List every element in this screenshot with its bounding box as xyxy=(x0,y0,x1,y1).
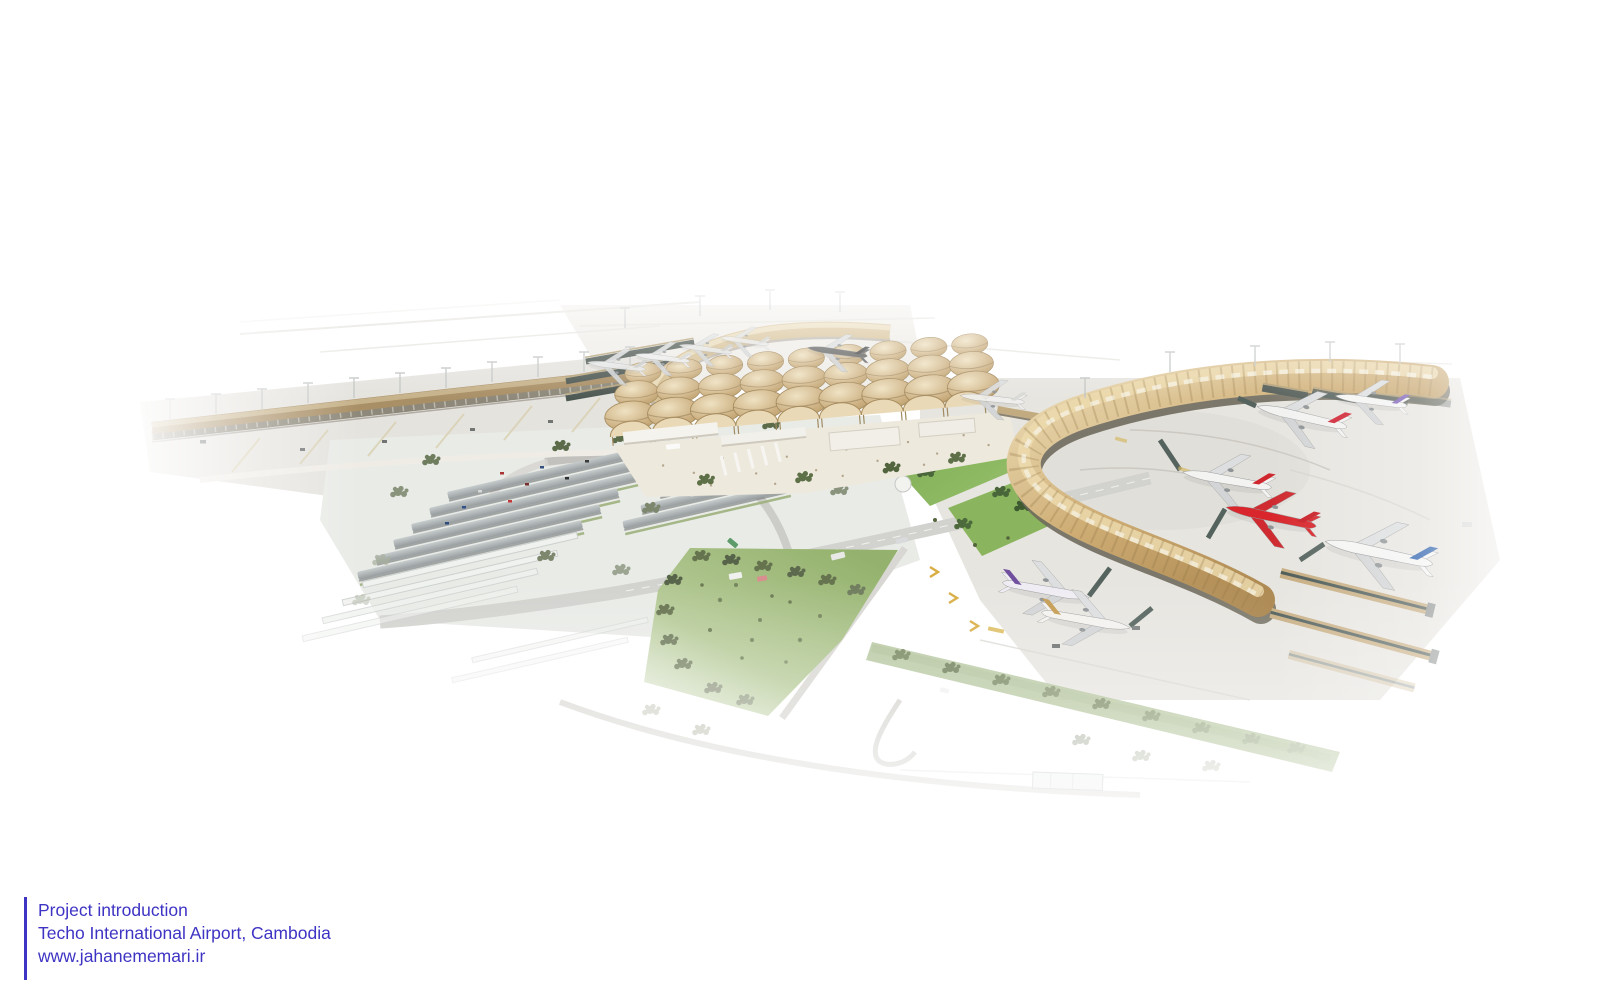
rendering-canvas xyxy=(0,0,1600,1000)
round-pavilion xyxy=(895,476,911,492)
caption-title: Project introduction xyxy=(38,899,331,922)
caption-website: www.jahanememari.ir xyxy=(38,945,331,968)
caption-project: Techo International Airport, Cambodia xyxy=(38,922,331,945)
airport-aerial-rendering: Project introduction Techo International… xyxy=(0,0,1600,1000)
credit-block: Project introduction Techo International… xyxy=(24,897,331,980)
